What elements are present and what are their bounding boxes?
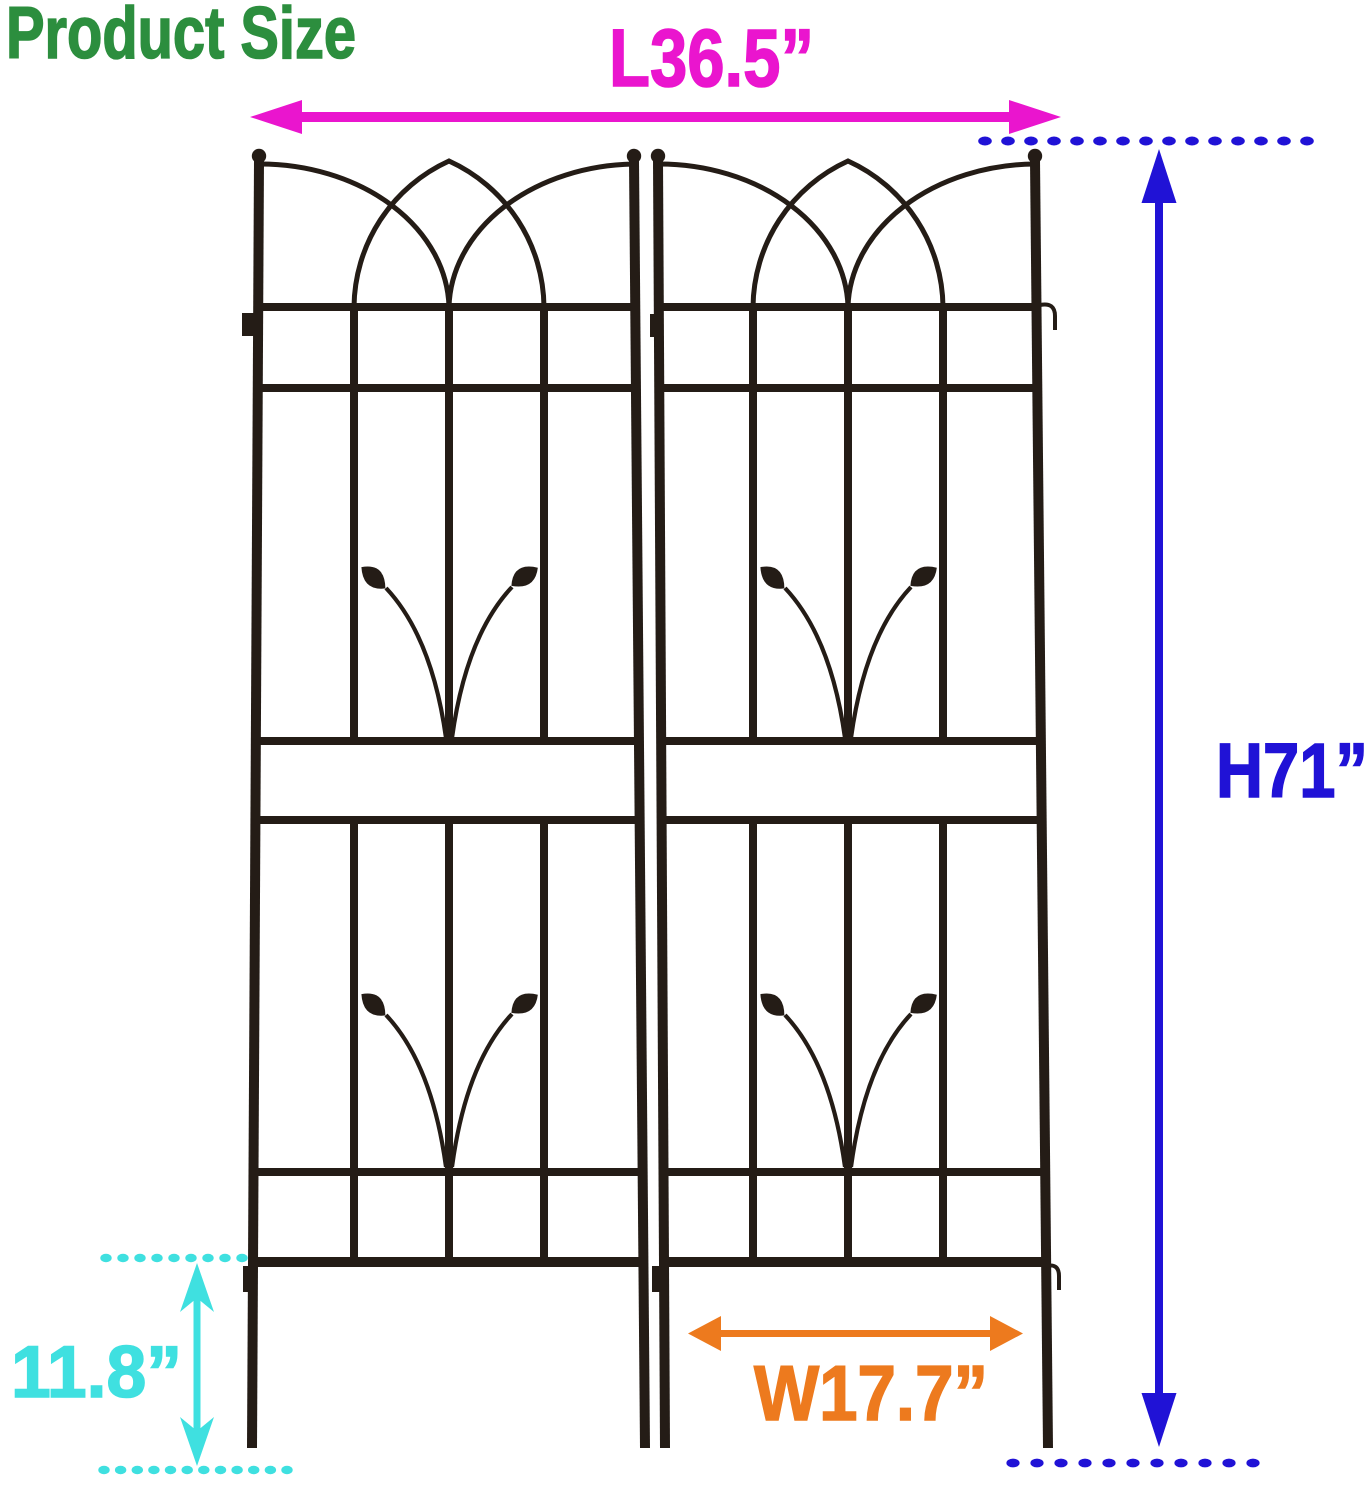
svg-text:Product Size: Product Size <box>6 0 356 74</box>
svg-text:H71”: H71” <box>1216 728 1368 814</box>
svg-text:11.8”: 11.8” <box>11 1332 182 1413</box>
svg-text:L36.5”: L36.5” <box>609 13 814 104</box>
svg-text:W17.7”: W17.7” <box>754 1349 988 1437</box>
